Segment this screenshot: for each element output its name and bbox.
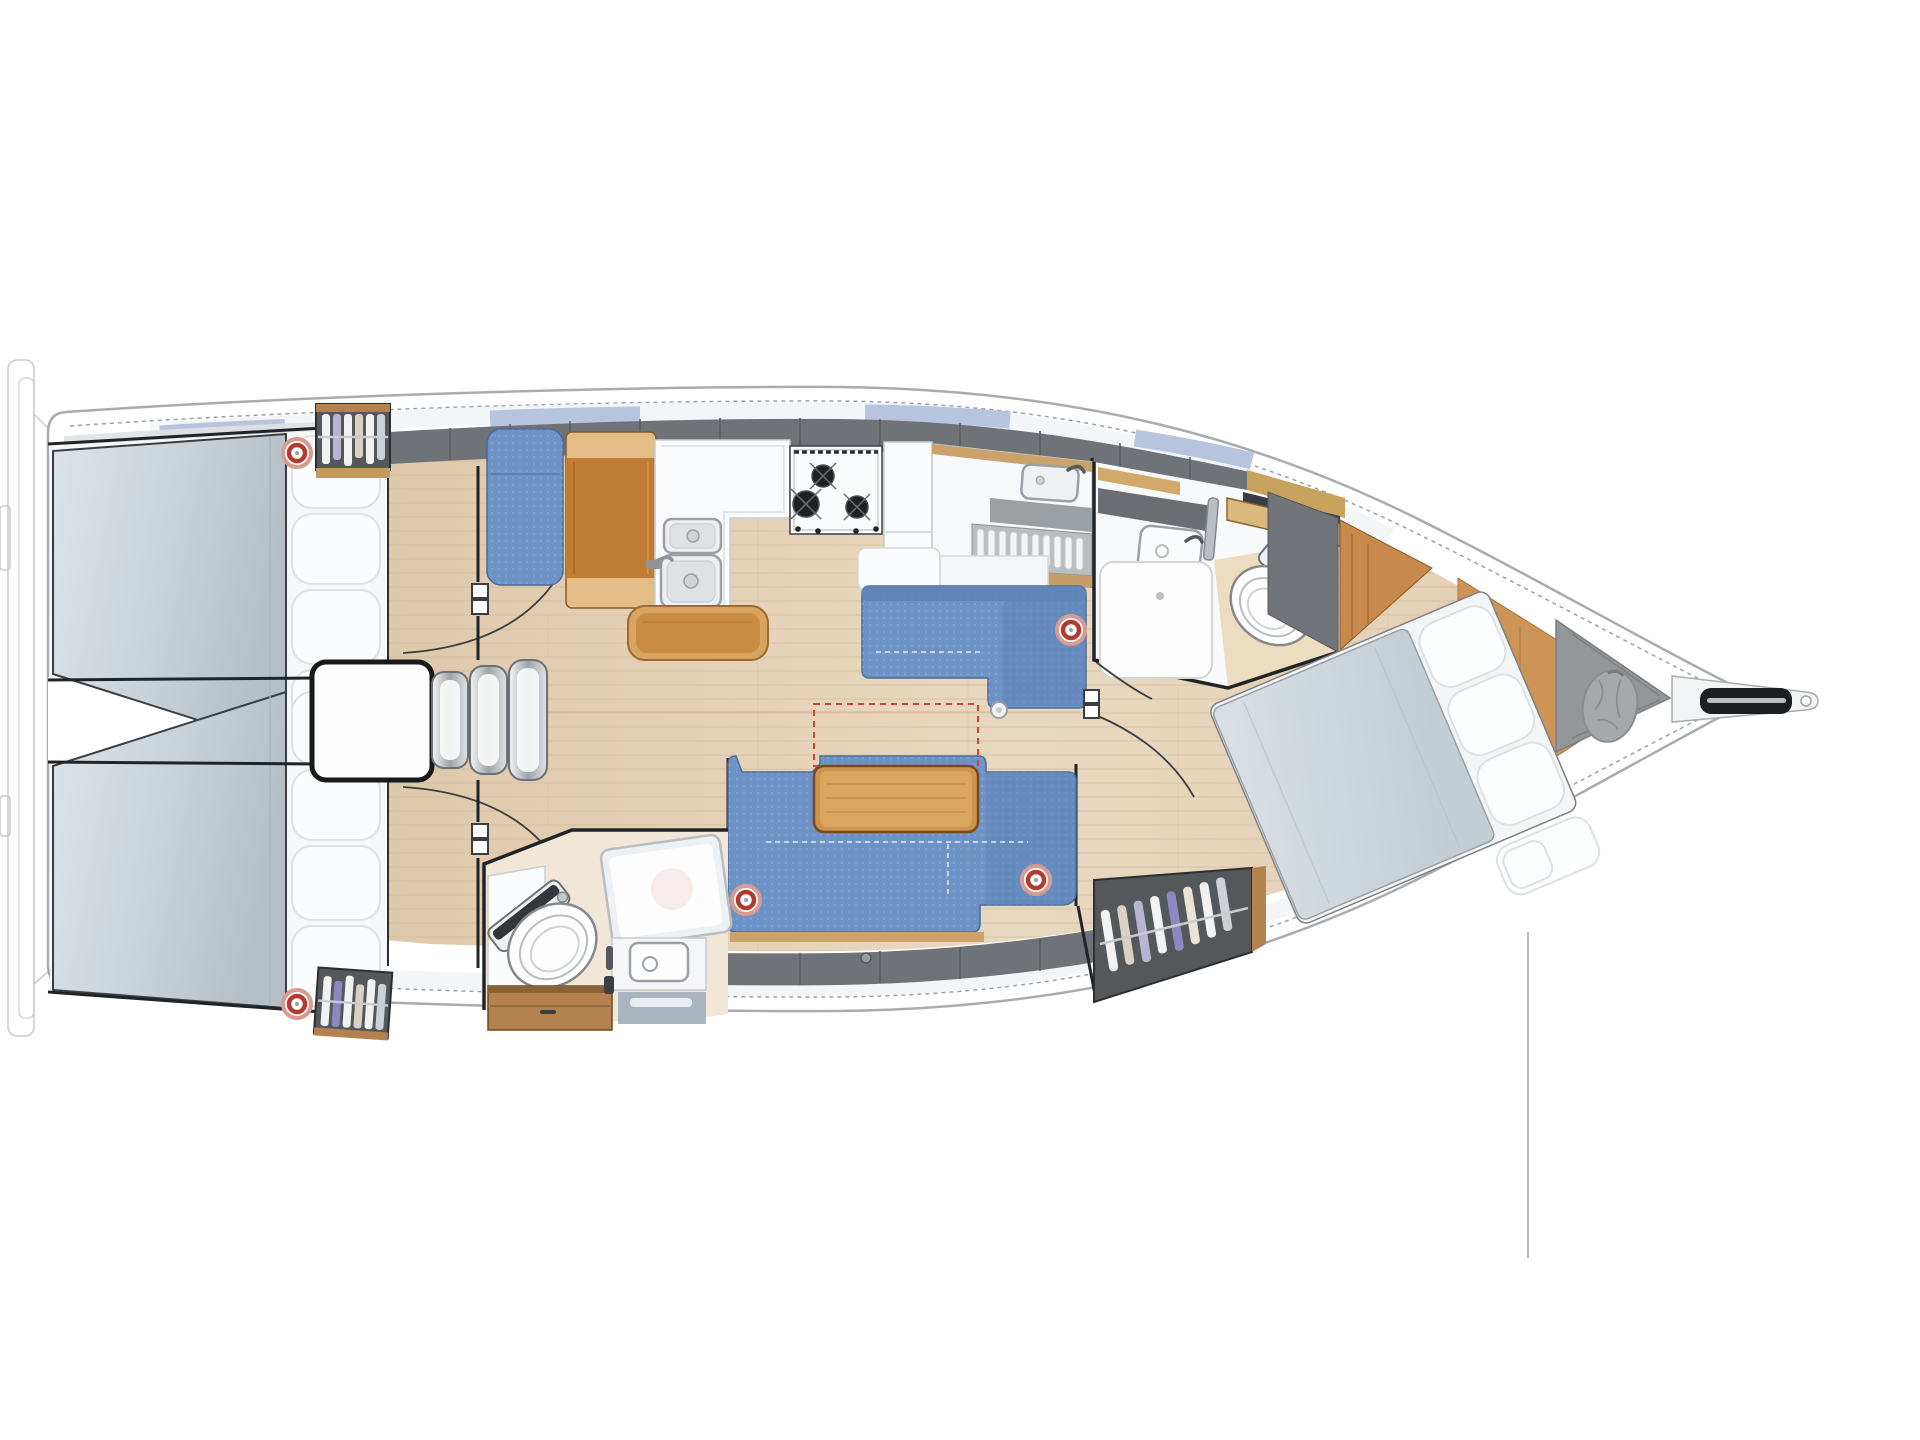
door-leaf xyxy=(472,824,488,838)
bow-eye xyxy=(1801,696,1811,706)
transom-outline xyxy=(8,360,34,1036)
hull-window xyxy=(865,413,1010,420)
shower-fitting xyxy=(604,976,614,994)
speaker-icon xyxy=(283,439,311,467)
door-leaf xyxy=(1084,690,1099,703)
wardrobe-base xyxy=(316,468,390,478)
shower-pan xyxy=(1100,562,1212,678)
speaker-icon xyxy=(732,886,760,914)
wardrobe-aft-starboard xyxy=(314,968,393,1041)
speaker-icon xyxy=(283,990,311,1018)
floor-plan-canvas xyxy=(0,0,1920,1440)
door-leaf xyxy=(472,600,488,614)
sink-drain xyxy=(1036,476,1045,485)
pillow xyxy=(292,590,380,664)
door-leaf xyxy=(1084,705,1099,718)
step-tread xyxy=(478,674,499,766)
counter-above-settee xyxy=(858,548,940,590)
wardrobe-forward xyxy=(1094,866,1266,1002)
boat-floor-plan xyxy=(0,0,1920,1440)
wardrobe-trim xyxy=(316,404,390,412)
galley-bench-island xyxy=(628,606,768,660)
transom-inner-outline xyxy=(19,378,34,1018)
chart-table xyxy=(566,432,656,608)
hull-window xyxy=(490,415,640,419)
berth-edge-line xyxy=(48,678,318,680)
mast-foot xyxy=(991,702,1007,718)
wardrobe-aft-port xyxy=(316,404,390,478)
step-tread xyxy=(517,668,539,772)
shower-cabinet-stripe xyxy=(630,998,692,1007)
table-top-highlight xyxy=(820,771,972,827)
transom-drawing xyxy=(0,360,50,1036)
door-leaf xyxy=(472,584,488,598)
sink-drain xyxy=(687,530,699,542)
pillow xyxy=(292,846,380,920)
aft-head xyxy=(483,830,732,1030)
anchor-roller-pin xyxy=(1707,698,1786,703)
companionway-steps xyxy=(432,660,547,780)
stove xyxy=(790,446,882,534)
nav-seat xyxy=(487,429,563,585)
sink-drain xyxy=(684,574,698,588)
shower-drain xyxy=(1156,592,1164,600)
berth-edge-line xyxy=(48,762,318,764)
locker-knob xyxy=(861,953,871,963)
speaker-icon xyxy=(1057,616,1085,644)
settee-backrest xyxy=(862,586,1086,601)
shower-sink xyxy=(630,943,688,981)
door-leaf xyxy=(472,840,488,854)
drawer-handle xyxy=(540,1010,556,1014)
speaker-icon xyxy=(1022,866,1050,894)
wardrobe-trim xyxy=(1252,866,1266,952)
head-drawers xyxy=(488,986,612,1030)
companionway xyxy=(312,660,547,780)
settee-wood-trim xyxy=(730,932,984,942)
pillow xyxy=(292,514,380,584)
engine-hatch xyxy=(312,662,432,780)
shower-cabinet xyxy=(618,992,706,1024)
step-tread xyxy=(440,680,460,760)
shelf-above-settee xyxy=(940,556,1048,586)
nav-station xyxy=(487,429,656,608)
shower-fitting xyxy=(606,946,613,970)
